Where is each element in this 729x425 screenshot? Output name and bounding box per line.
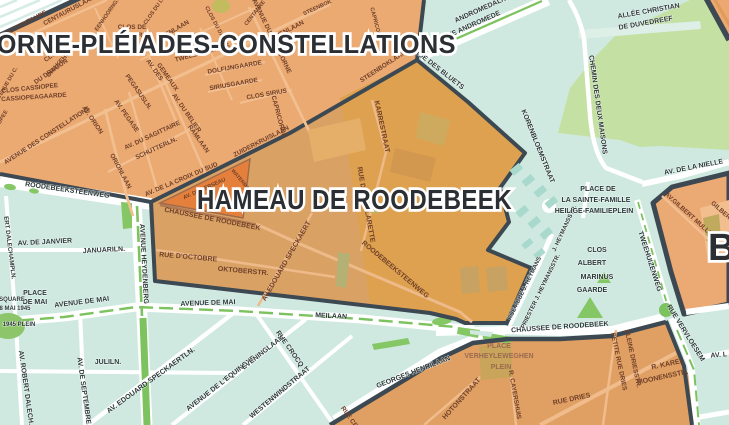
svg-text:VERHEYLEWEGHEN: VERHEYLEWEGHEN [464,353,533,360]
svg-text:LA SAINTE-FAMILLE: LA SAINTE-FAMILLE [562,197,631,204]
svg-text:PLEIN: PLEIN [491,364,512,371]
svg-text:PLACE DE: PLACE DE [580,186,616,193]
svg-text:JULILN.: JULILN. [95,359,122,366]
svg-text:MARINUS: MARINUS [581,274,614,281]
svg-text:PLACE: PLACE [23,290,47,297]
svg-text:SQUARE: SQUARE [0,297,25,303]
svg-text:CORNE-PLÉIADES-CONSTELLATIONS: CORNE-PLÉIADES-CONSTELLATIONS [0,29,456,59]
svg-text:ALBERT: ALBERT [578,260,607,267]
svg-text:GAARDE: GAARDE [577,287,608,294]
svg-text:DE MAI: DE MAI [23,299,48,306]
svg-text:CLOS: CLOS [587,247,607,254]
svg-text:8 MAI 1945: 8 MAI 1945 [0,306,31,312]
svg-text:HEILIGE-FAMILIEPLEIN: HEILIGE-FAMILIEPLEIN [555,208,634,215]
svg-text:1945 PLEIN: 1945 PLEIN [3,322,36,328]
svg-text:PLACE: PLACE [487,343,511,350]
svg-text:HAMEAU DE ROODEBEEK: HAMEAU DE ROODEBEEK [197,184,512,215]
svg-text:B: B [708,227,729,269]
